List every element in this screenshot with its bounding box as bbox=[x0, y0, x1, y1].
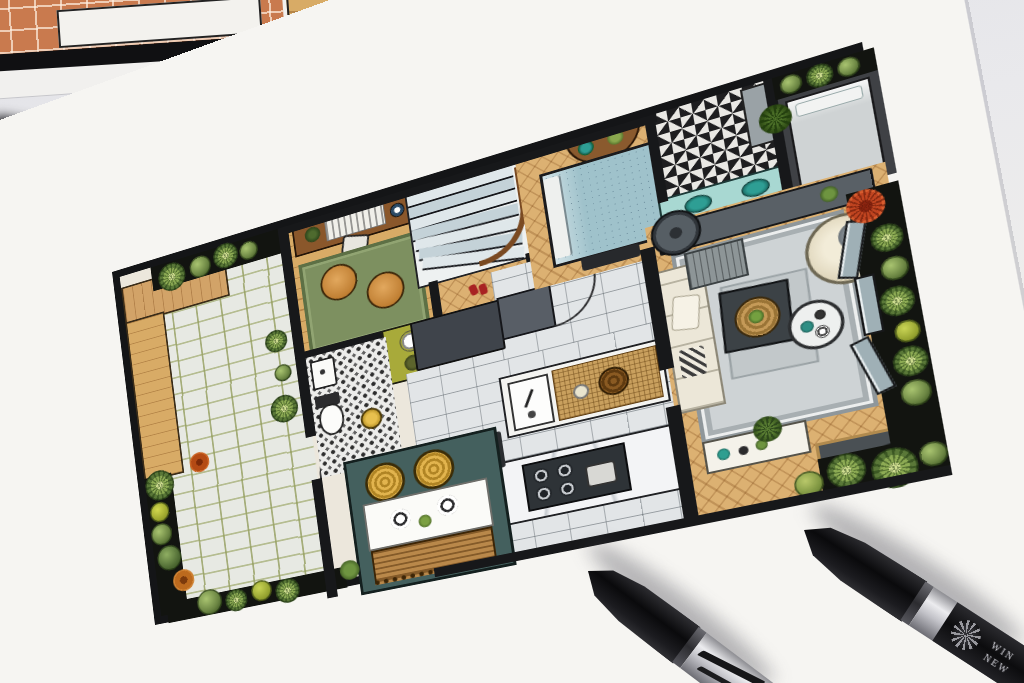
wood-tray bbox=[733, 292, 783, 341]
plant bbox=[819, 184, 840, 204]
wc-sink bbox=[310, 356, 338, 391]
place-setting bbox=[389, 507, 412, 531]
burner bbox=[556, 461, 574, 479]
griffin-logo bbox=[945, 614, 986, 655]
decor-dot bbox=[716, 447, 731, 461]
place-setting bbox=[436, 493, 459, 517]
toilet bbox=[314, 391, 345, 436]
faucet bbox=[524, 389, 533, 408]
photo-scene: { "scene": { "description": "Photograph … bbox=[0, 0, 1024, 683]
drain bbox=[320, 369, 326, 375]
cup bbox=[814, 308, 827, 320]
cup bbox=[814, 324, 831, 340]
plant bbox=[748, 308, 765, 324]
drain bbox=[527, 410, 536, 419]
coffee-table bbox=[718, 279, 794, 354]
pan bbox=[585, 460, 619, 489]
cup bbox=[799, 319, 814, 334]
sofa-throw bbox=[678, 345, 708, 379]
herb-pot bbox=[418, 513, 433, 528]
sink bbox=[507, 373, 555, 431]
burner bbox=[532, 467, 550, 485]
decor-dot bbox=[738, 445, 749, 456]
burner bbox=[535, 485, 553, 503]
sofa-cushion bbox=[672, 294, 701, 331]
desk-dish bbox=[389, 201, 405, 219]
burner bbox=[559, 480, 577, 498]
